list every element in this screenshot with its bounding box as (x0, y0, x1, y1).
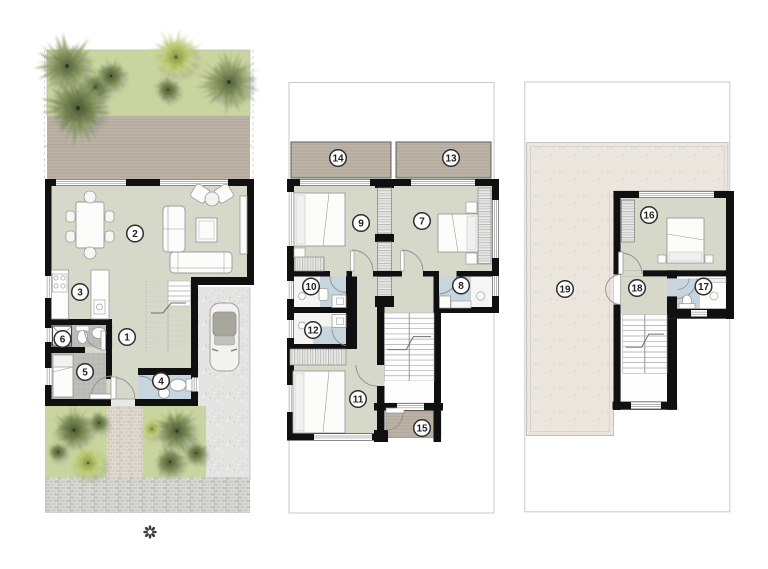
svg-text:13: 13 (445, 153, 457, 164)
svg-text:2: 2 (132, 229, 138, 240)
svg-text:9: 9 (358, 218, 364, 229)
svg-text:15: 15 (416, 423, 428, 434)
svg-text:17: 17 (698, 282, 710, 293)
svg-text:1: 1 (124, 332, 130, 343)
svg-text:12: 12 (307, 325, 319, 336)
svg-text:10: 10 (305, 282, 317, 293)
svg-text:7: 7 (419, 216, 425, 227)
svg-text:19: 19 (559, 284, 571, 295)
svg-text:16: 16 (643, 210, 655, 221)
svg-text:5: 5 (82, 367, 88, 378)
svg-text:11: 11 (353, 394, 364, 405)
svg-text:6: 6 (60, 334, 66, 345)
svg-text:3: 3 (77, 287, 83, 298)
svg-text:18: 18 (631, 283, 643, 294)
svg-text:8: 8 (458, 281, 464, 292)
svg-text:14: 14 (332, 153, 344, 164)
svg-text:4: 4 (158, 376, 164, 387)
